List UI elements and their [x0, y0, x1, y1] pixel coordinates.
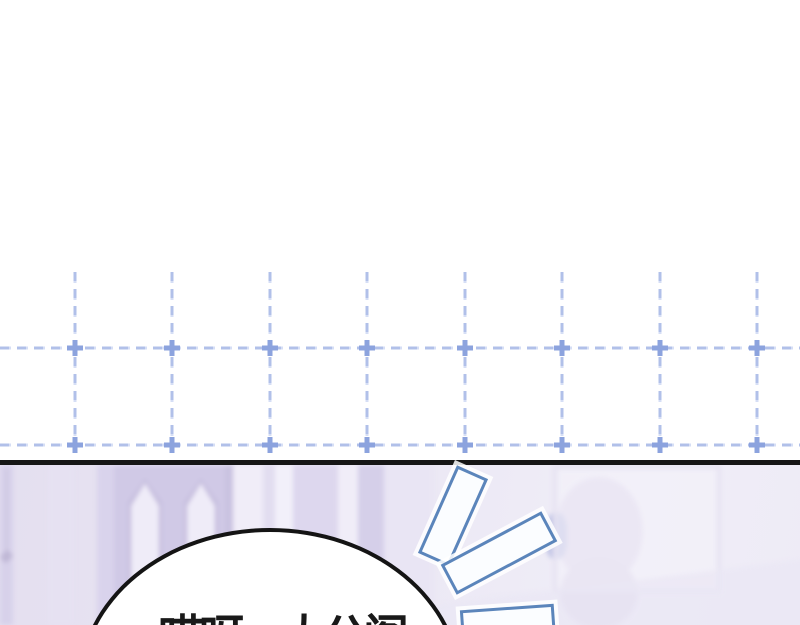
- panel-border-line: [0, 460, 800, 465]
- blank-margin: [0, 0, 800, 272]
- curtain-stripe: [48, 465, 74, 625]
- speech-text: 哎呀，大公阁: [158, 601, 404, 625]
- comic-panel: 哎呀，大公阁: [0, 0, 800, 625]
- chandelier-chain: [5, 469, 8, 555]
